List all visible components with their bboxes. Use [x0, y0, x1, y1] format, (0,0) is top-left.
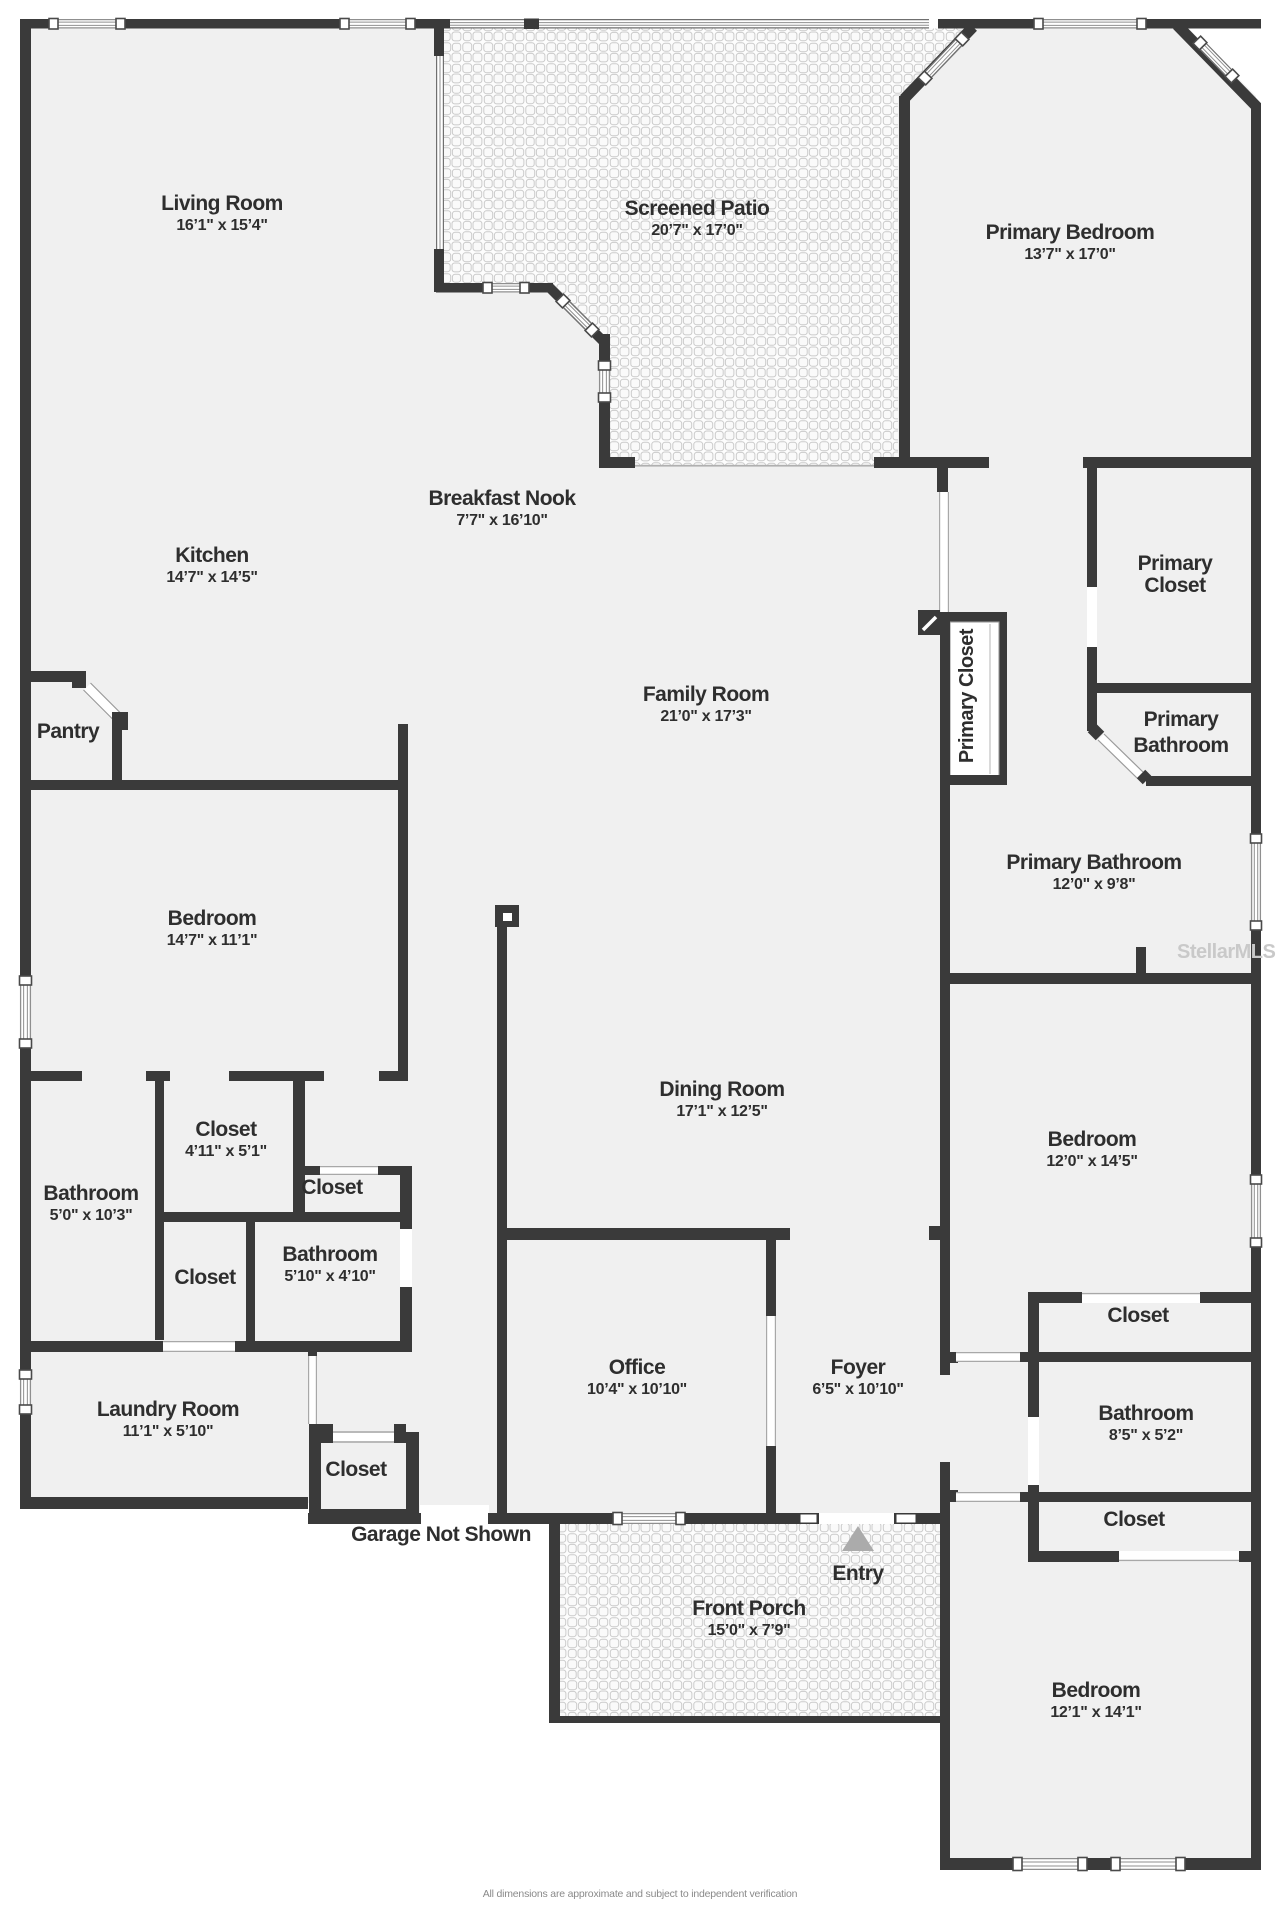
- svg-text:Closet: Closet: [301, 1176, 363, 1199]
- svg-text:Closet: Closet: [1107, 1304, 1169, 1327]
- svg-text:Front Porch: Front Porch: [692, 1597, 806, 1620]
- svg-text:Office: Office: [609, 1356, 666, 1379]
- svg-text:Closet: Closet: [325, 1458, 387, 1481]
- svg-text:6’5" x 10’10": 6’5" x 10’10": [812, 1381, 903, 1398]
- svg-text:13’7" x 17’0": 13’7" x 17’0": [1024, 246, 1115, 263]
- svg-text:10’4" x 10’10": 10’4" x 10’10": [587, 1381, 687, 1398]
- svg-text:Bedroom: Bedroom: [168, 907, 257, 930]
- svg-text:7’7" x 16’10": 7’7" x 16’10": [456, 512, 547, 529]
- svg-text:Breakfast Nook: Breakfast Nook: [428, 487, 576, 510]
- svg-text:12’0" x 9’8": 12’0" x 9’8": [1053, 876, 1136, 893]
- svg-text:Entry: Entry: [832, 1562, 884, 1585]
- svg-text:12’1" x 14’1": 12’1" x 14’1": [1050, 1704, 1141, 1721]
- svg-text:Kitchen: Kitchen: [175, 544, 249, 567]
- svg-text:5’10" x 4’10": 5’10" x 4’10": [284, 1268, 375, 1285]
- svg-text:Foyer: Foyer: [831, 1356, 886, 1379]
- svg-text:Bathroom: Bathroom: [43, 1182, 138, 1205]
- svg-text:Closet: Closet: [1144, 574, 1206, 597]
- svg-text:4’11" x 5’1": 4’11" x 5’1": [185, 1143, 267, 1160]
- svg-text:14’7" x 14’5": 14’7" x 14’5": [166, 569, 257, 586]
- svg-text:Closet: Closet: [174, 1266, 236, 1289]
- svg-text:Primary Bathroom: Primary Bathroom: [1006, 851, 1181, 874]
- svg-text:20’7" x 17’0": 20’7" x 17’0": [651, 222, 742, 239]
- svg-text:Bedroom: Bedroom: [1048, 1128, 1137, 1151]
- svg-text:Pantry: Pantry: [37, 720, 100, 743]
- svg-text:Living Room: Living Room: [161, 192, 283, 215]
- svg-text:Garage Not Shown: Garage Not Shown: [351, 1523, 531, 1546]
- svg-text:Bathroom: Bathroom: [1133, 734, 1228, 757]
- svg-text:Bathroom: Bathroom: [282, 1243, 377, 1266]
- svg-text:8’5" x 5’2": 8’5" x 5’2": [1109, 1427, 1183, 1444]
- svg-text:5’0" x 10’3": 5’0" x 10’3": [50, 1207, 133, 1224]
- svg-text:21’0" x 17’3": 21’0" x 17’3": [660, 708, 751, 725]
- svg-text:Family Room: Family Room: [643, 683, 769, 706]
- svg-text:12’0" x 14’5": 12’0" x 14’5": [1046, 1153, 1137, 1170]
- svg-text:All dimensions are approximate: All dimensions are approximate and subje…: [483, 1888, 798, 1900]
- svg-text:Laundry Room: Laundry Room: [97, 1398, 239, 1421]
- svg-text:Closet: Closet: [195, 1118, 257, 1141]
- svg-text:14’7" x 11’1": 14’7" x 11’1": [167, 932, 257, 949]
- svg-text:Primary Bedroom: Primary Bedroom: [986, 221, 1155, 244]
- svg-text:11’1" x 5’10": 11’1" x 5’10": [123, 1423, 213, 1440]
- svg-text:Bedroom: Bedroom: [1052, 1679, 1141, 1702]
- svg-text:Primary: Primary: [1138, 552, 1214, 575]
- svg-text:Bathroom: Bathroom: [1098, 1402, 1193, 1425]
- svg-text:Closet: Closet: [1103, 1508, 1165, 1531]
- svg-text:Primary: Primary: [1144, 708, 1220, 731]
- svg-text:Dining Room: Dining Room: [659, 1078, 784, 1101]
- svg-text:17’1" x 12’5": 17’1" x 12’5": [676, 1103, 767, 1120]
- svg-text:Primary Closet: Primary Closet: [956, 628, 978, 763]
- svg-text:Screened Patio: Screened Patio: [625, 197, 770, 220]
- svg-text:StellarMLS: StellarMLS: [1177, 941, 1276, 963]
- svg-text:15’0" x 7’9": 15’0" x 7’9": [708, 1622, 791, 1639]
- svg-text:16’1" x 15’4": 16’1" x 15’4": [176, 217, 267, 234]
